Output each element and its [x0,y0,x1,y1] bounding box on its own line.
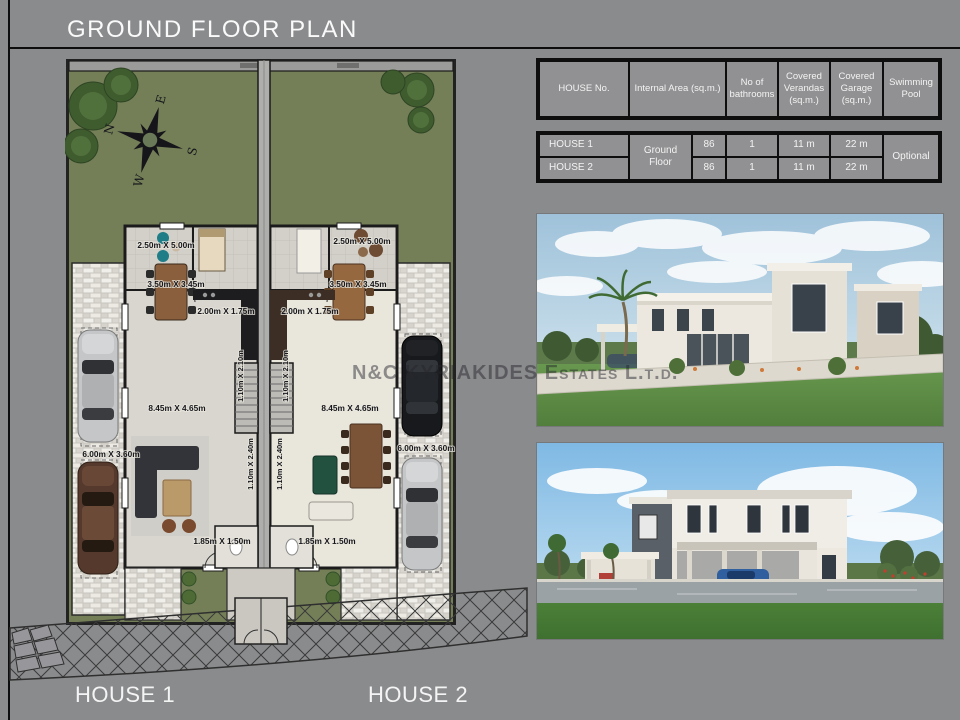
dim-hall-right: 1.10m X 2.10m [281,350,290,402]
title-rule [10,47,960,49]
house-render-front [537,214,943,426]
cell-house-2: HOUSE 2 [539,157,629,180]
lawn [537,603,943,639]
dim-hall-left: 1.10m X 2.10m [236,350,245,402]
cell-garage-2: 22 m [830,157,883,180]
dim-dining-left: 3.50m X 3.45m [147,279,204,289]
dim-living-right: 8.45m X 4.65m [321,403,378,413]
cell-area-1: 86 [692,134,726,157]
floor-plan-drawing: N E S W 2.50m X 5.00m 2.50m X 5.00m 3.50… [65,58,457,628]
car-silver-right [402,458,442,570]
cell-bath-1: 1 [726,134,778,157]
street-entrance [235,598,287,644]
cell-pool: Optional [883,134,939,180]
dim-dining-right: 3.50m X 3.45m [329,279,386,289]
header-verandas: Covered Verandas (sq.m.) [778,61,830,117]
cell-house-1: HOUSE 1 [539,134,629,157]
plot-note-mark [337,63,359,68]
cell-floor-scope: Ground Floor [629,134,692,180]
header-garage: Covered Garage (sq.m.) [830,61,883,117]
watermark: N&C KYRIAKIDES Estates L.t.d. [352,362,678,385]
header-pool: Swimming Pool [883,61,939,117]
house2-label: HOUSE 2 [368,682,468,708]
wet-road [537,582,943,603]
dim-bedroom-right: 2.50m X 5.00m [333,236,390,246]
table-row: HOUSE 2 86 1 11 m 22 m [539,157,939,180]
house1-label: HOUSE 1 [75,682,175,708]
plot-note-mark [240,63,260,68]
cell-verandas-1: 11 m [778,134,830,157]
curb [537,579,943,582]
spec-table-header: HOUSE No. Internal Area (sq.m.) No of ba… [536,58,942,120]
header-house-no: HOUSE No. [539,61,629,117]
cell-garage-1: 22 m [830,134,883,157]
brochure-page: GROUND FLOOR PLAN HOUSE No. Internal Are… [0,0,960,720]
dim-stair-right: 1.10m X 2.40m [275,438,284,490]
dim-garage-left: 6.00m X 3.60m [82,449,139,459]
car-silver-left [78,330,118,442]
header-bathrooms: No of bathrooms [726,61,778,117]
dim-garage-right: 6.00m X 3.60m [397,443,454,453]
dim-bedroom-left: 2.50m X 5.00m [137,240,194,250]
dim-kitchen-left: 2.00m X 1.75m [197,306,254,316]
header-internal-area: Internal Area (sq.m.) [629,61,726,117]
car-black-right [402,336,442,436]
cell-bath-2: 1 [726,157,778,180]
dim-kitchen-right: 2.00m X 1.75m [281,306,338,316]
cell-area-2: 86 [692,157,726,180]
dim-wc-right: 1.85m X 1.50m [298,536,355,546]
dim-wc-left: 1.85m X 1.50m [193,536,250,546]
dim-living-left: 8.45m X 4.65m [148,403,205,413]
car-brown-left [78,462,118,574]
table-row: HOUSE 1 Ground Floor 86 1 11 m 22 m Opti… [539,134,939,157]
dim-stair-left: 1.10m X 2.40m [246,438,255,490]
spec-table-data: HOUSE 1 Ground Floor 86 1 11 m 22 m Opti… [536,131,942,183]
house-render-side [537,443,943,639]
road-drawing [8,578,535,690]
cell-verandas-2: 11 m [778,157,830,180]
page-title: GROUND FLOOR PLAN [67,16,358,44]
